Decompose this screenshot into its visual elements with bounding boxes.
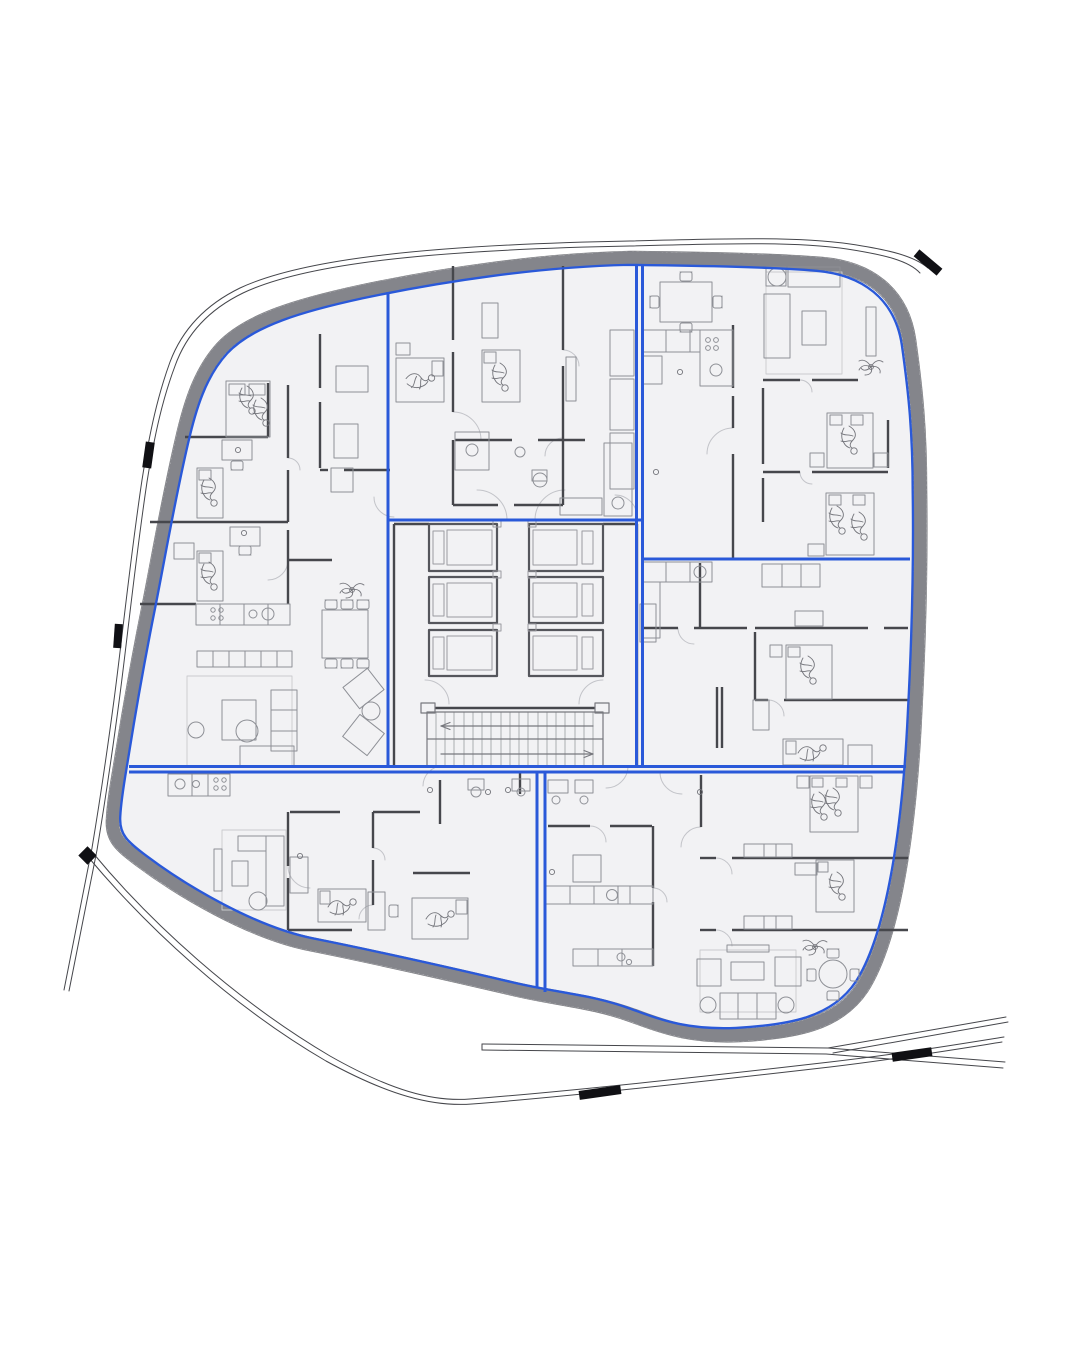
floor-plan-canvas [0, 0, 1080, 1350]
floor-plan-document [0, 0, 1080, 1350]
